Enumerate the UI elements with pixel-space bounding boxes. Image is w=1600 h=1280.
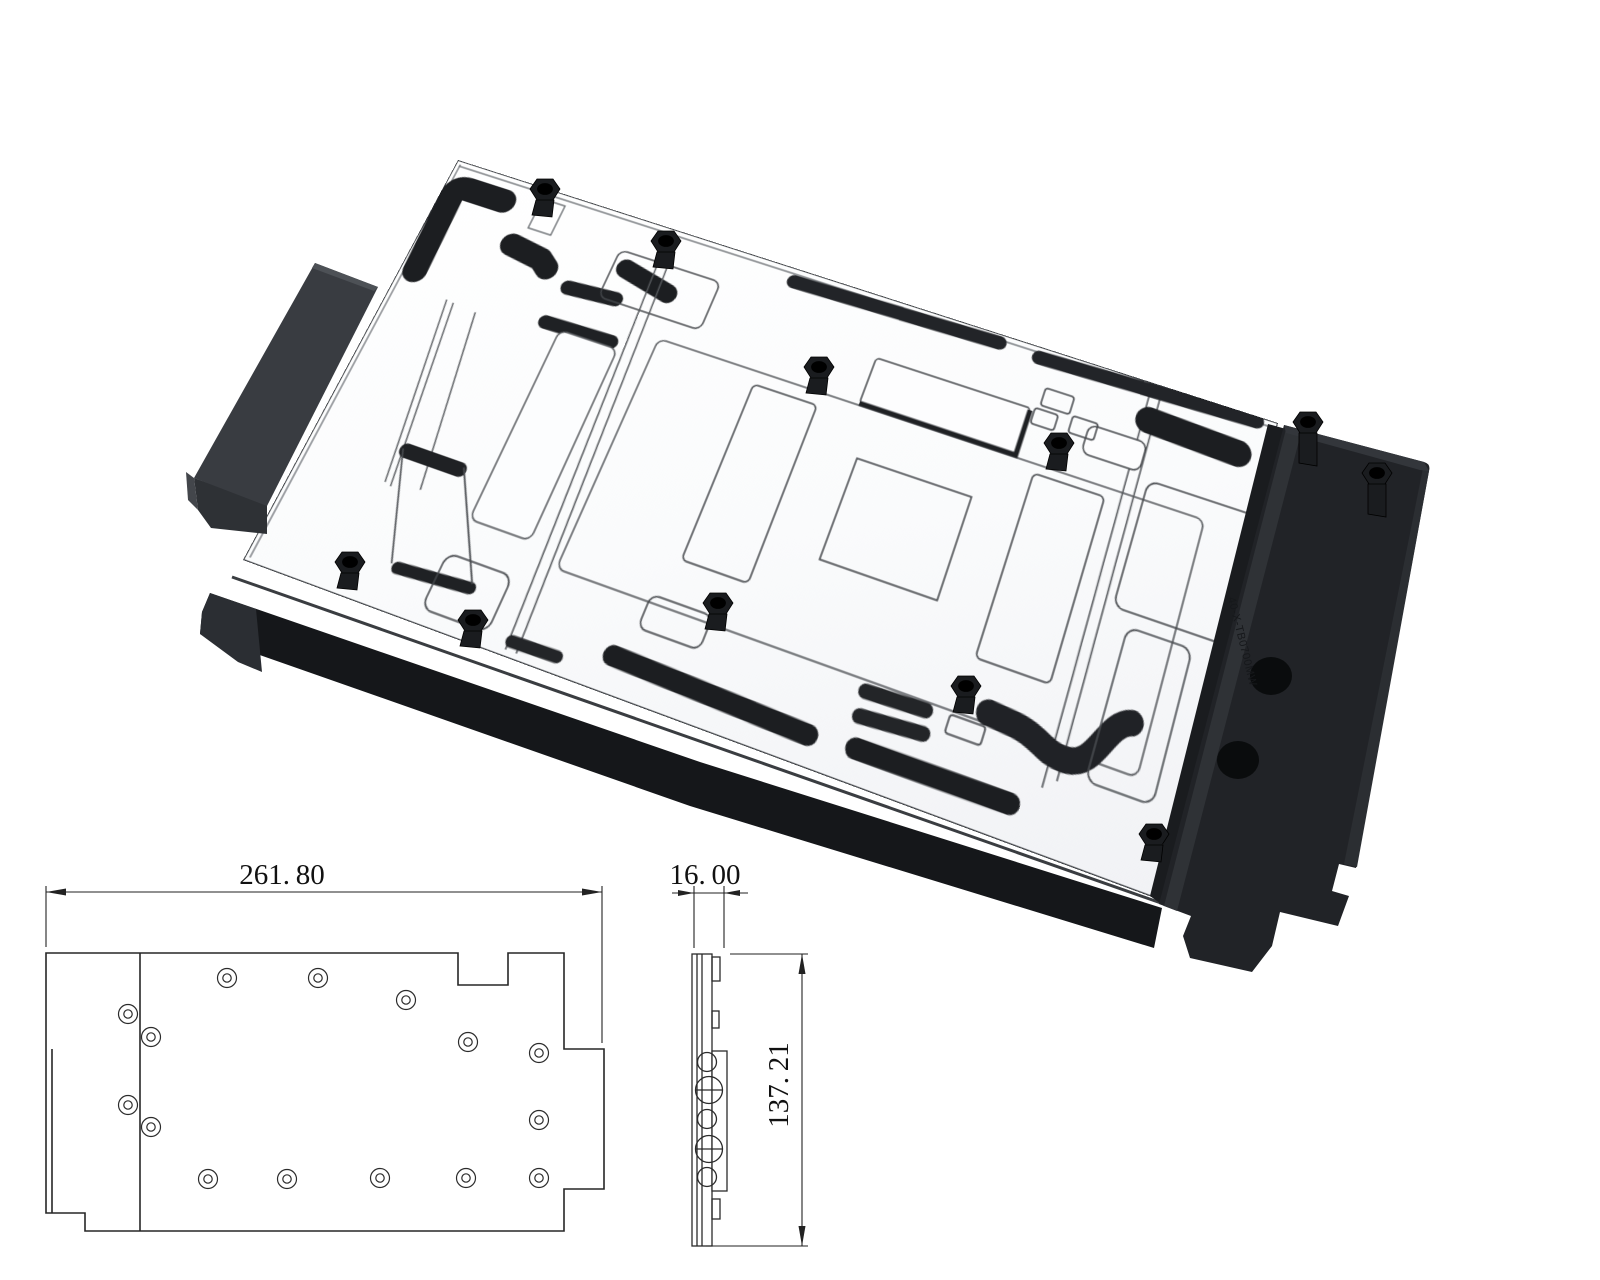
svg-text:16. 00: 16. 00: [669, 859, 740, 891]
svg-text:261. 80: 261. 80: [239, 859, 325, 891]
svg-text:137. 21: 137. 21: [763, 1042, 795, 1128]
